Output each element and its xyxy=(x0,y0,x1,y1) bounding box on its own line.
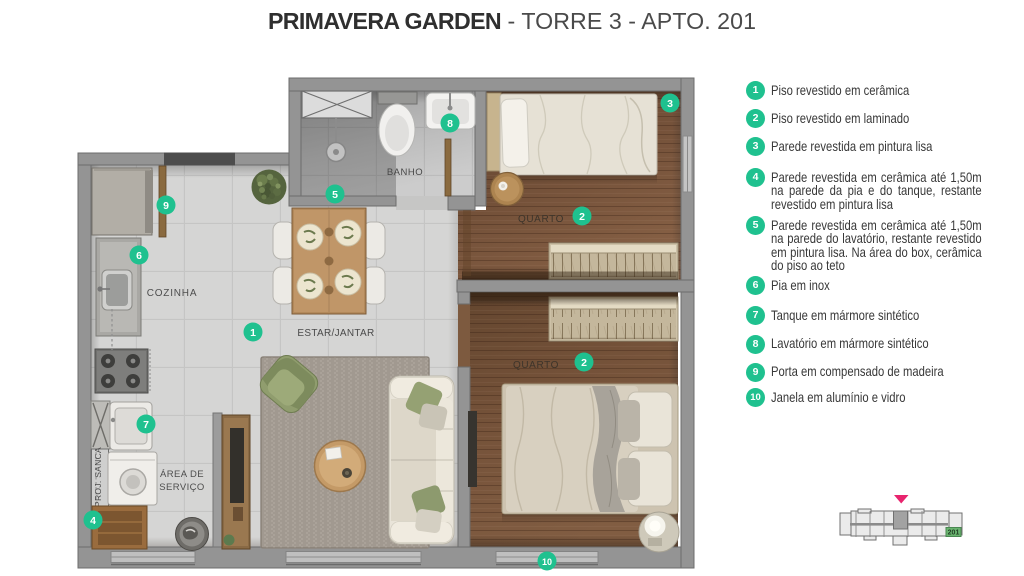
svg-text:QUARTO: QUARTO xyxy=(513,360,559,371)
svg-text:QUARTO: QUARTO xyxy=(518,214,564,225)
svg-text:ESTAR/JANTAR: ESTAR/JANTAR xyxy=(297,328,374,339)
svg-text:3: 3 xyxy=(667,98,673,110)
svg-text:1: 1 xyxy=(250,327,256,339)
svg-text:6: 6 xyxy=(136,250,142,262)
svg-text:SERVIÇO: SERVIÇO xyxy=(159,482,204,493)
svg-text:2: 2 xyxy=(581,357,587,369)
svg-text:5: 5 xyxy=(332,189,338,201)
svg-text:ÁREA DE: ÁREA DE xyxy=(160,469,204,480)
svg-text:2: 2 xyxy=(579,211,585,223)
svg-text:PROJ. SANCA: PROJ. SANCA xyxy=(93,447,103,507)
svg-text:9: 9 xyxy=(163,200,169,212)
svg-text:10: 10 xyxy=(542,557,552,567)
svg-text:8: 8 xyxy=(447,118,453,130)
svg-text:4: 4 xyxy=(90,515,96,527)
svg-text:201: 201 xyxy=(948,530,960,537)
svg-text:7: 7 xyxy=(143,419,149,431)
svg-text:COZINHA: COZINHA xyxy=(147,288,198,299)
svg-text:BANHO: BANHO xyxy=(387,167,423,178)
